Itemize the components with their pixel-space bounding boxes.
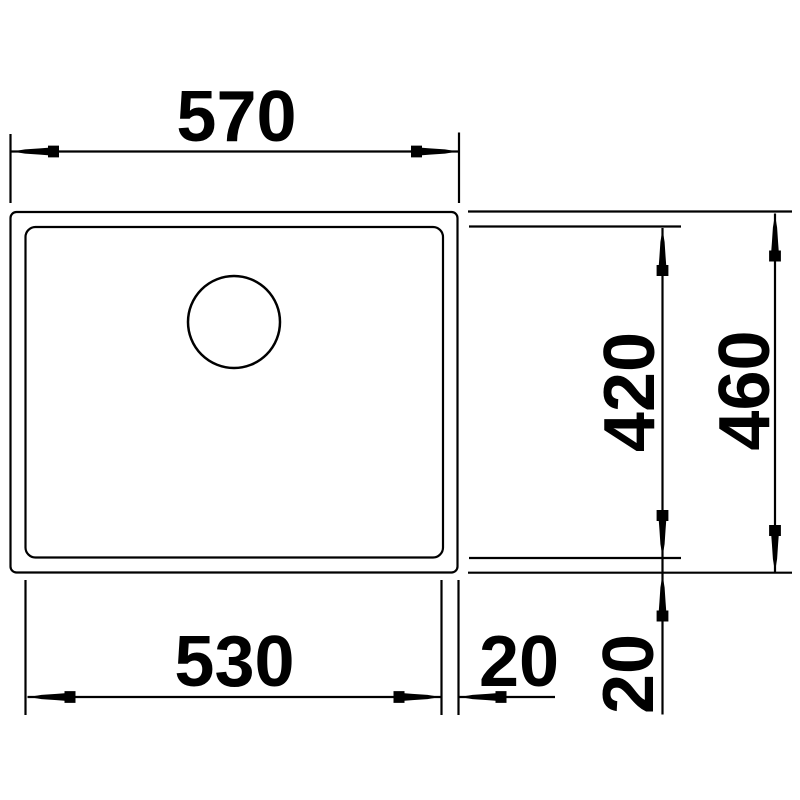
svg-text:570: 570 — [176, 77, 296, 157]
svg-text:20: 20 — [479, 622, 559, 702]
svg-text:20: 20 — [589, 634, 669, 714]
svg-text:530: 530 — [174, 622, 294, 702]
svg-text:460: 460 — [705, 330, 785, 450]
svg-text:420: 420 — [590, 332, 670, 452]
